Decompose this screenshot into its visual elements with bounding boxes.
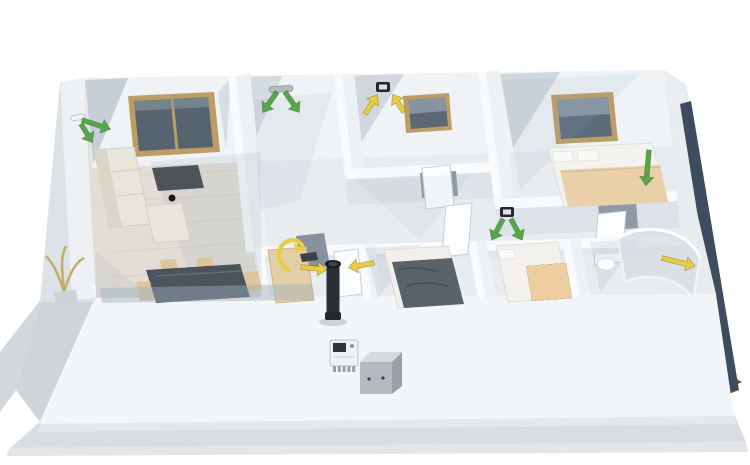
wall-controller [330,340,358,372]
outdoor-unit [360,352,402,394]
bathroom-extract-valve [376,82,390,92]
bedroom2-ceiling-valve [500,207,514,217]
floorplan-svg [0,0,750,465]
bathroom-window [403,93,452,133]
floorplan-render [0,0,750,465]
hallway-ceiling-diffuser [269,85,293,92]
armchair [146,203,190,243]
living-window [128,92,220,157]
